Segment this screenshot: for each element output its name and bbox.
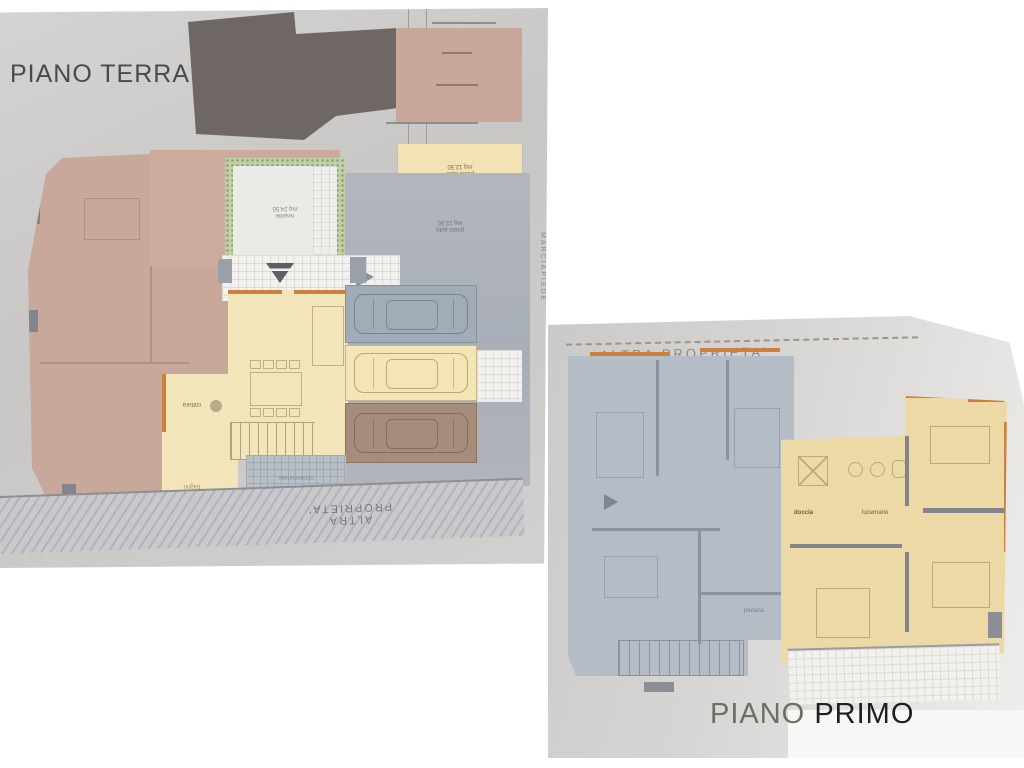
wall-segment: [923, 508, 1005, 513]
wall-segment: [698, 528, 701, 644]
furniture-outline: [312, 306, 344, 366]
skylight-label: lucernario: [862, 510, 888, 517]
wall-segment: [40, 362, 190, 364]
furniture-outline: [84, 198, 140, 240]
wall-orange-accent: [294, 290, 346, 294]
wall-orange-accent: [590, 352, 670, 356]
chair: [263, 408, 274, 417]
platform-label: pedana: [744, 608, 764, 615]
parking-size-label: mq 12,50: [418, 218, 482, 225]
courtyard-lawn: resede mq 24,50: [233, 166, 337, 256]
condominium-label: condominiale: [260, 473, 332, 480]
adjacent-building-mass: [186, 12, 398, 144]
bed-outline: [816, 588, 870, 638]
illegible-caption: [442, 52, 472, 54]
illegible-caption: [386, 122, 478, 124]
wall-pier: [988, 612, 1002, 638]
highlight-apartment: doccia lucernario: [776, 392, 1012, 684]
chair: [250, 408, 261, 417]
sink: [848, 462, 863, 477]
wall-orange-accent: [700, 348, 780, 352]
car-icon: [354, 353, 468, 393]
dining-table: [250, 372, 302, 406]
first-floor-title-word1: PIANO: [710, 698, 805, 730]
wall-segment: [726, 360, 729, 460]
wall-orange-accent: [968, 398, 1004, 402]
sidewalk-label: MARCIAPIEDE: [539, 232, 546, 328]
other-property-room: [396, 28, 522, 122]
chair: [276, 360, 287, 369]
ground-floor-plan: PIANO TERRA posto auto mq 12,50 posto au…: [0, 8, 548, 568]
car-icon: [354, 413, 468, 453]
bed-outline: [734, 408, 780, 468]
other-property-apartment: pedana: [568, 356, 794, 676]
illegible-caption: [432, 22, 496, 24]
chair: [289, 360, 300, 369]
courtyard-label: resede: [259, 211, 311, 218]
illegible-caption: [436, 84, 478, 86]
parking-label: posto auto: [418, 225, 482, 232]
other-property-label: ALTRA PROPRIETA': [289, 500, 410, 528]
ground-floor-title: PIANO TERRA: [10, 60, 190, 89]
wall-pier: [30, 206, 40, 224]
staircase: [618, 640, 744, 676]
wall-orange-accent: [162, 374, 166, 432]
sink: [870, 462, 885, 477]
furniture-outline: [604, 556, 658, 598]
wall-pier: [218, 259, 232, 283]
wall-segment: [790, 544, 902, 548]
garage-stall-blue: [345, 285, 477, 343]
car-icon: [354, 294, 468, 334]
wall-segment: [656, 360, 659, 476]
driveway-paving: [477, 350, 522, 402]
bed-outline: [930, 426, 990, 464]
parking-size-label: mq 12,50: [428, 162, 492, 169]
first-floor-title-word2: PRIMO: [814, 698, 914, 730]
first-floor-title: PIANO PRIMO: [710, 698, 914, 731]
chair: [263, 360, 274, 369]
wall-segment: [905, 552, 909, 632]
wall-orange-accent: [226, 290, 282, 294]
courtyard-label-group: resede mq 24,50: [259, 204, 311, 218]
courtyard-size-label: mq 24,50: [259, 204, 311, 211]
terrace-tiles: [787, 643, 1000, 705]
parking-other: posto auto mq 12,50: [418, 218, 482, 232]
bed-outline: [596, 412, 644, 478]
garage-stall-brown: [345, 403, 477, 463]
north-arrow-icon: [266, 263, 294, 283]
wall-segment: [905, 436, 909, 506]
wc: [892, 460, 906, 478]
shower-label: doccia: [794, 510, 813, 517]
first-floor-plan: ALTRA PROPRIETA' pedana doccia lucernari…: [548, 316, 1024, 758]
wall-orange-accent: [1004, 422, 1008, 552]
chair: [276, 408, 287, 417]
wall-orange-accent: [906, 394, 954, 398]
kitchen-label: cottura: [170, 400, 214, 407]
chair: [289, 408, 300, 417]
wall-pier: [350, 257, 366, 283]
courtyard-walkway: [313, 166, 337, 260]
courtyard-hedge: resede mq 24,50: [225, 158, 345, 260]
wall-segment: [698, 592, 794, 595]
wall-pier: [644, 682, 674, 692]
entry-arrow-icon: [604, 494, 618, 510]
garage-stall-highlight: [345, 345, 477, 401]
chair: [250, 360, 261, 369]
shower-tray: [798, 456, 828, 486]
wall-pier: [28, 310, 38, 332]
bed-outline: [932, 562, 990, 608]
